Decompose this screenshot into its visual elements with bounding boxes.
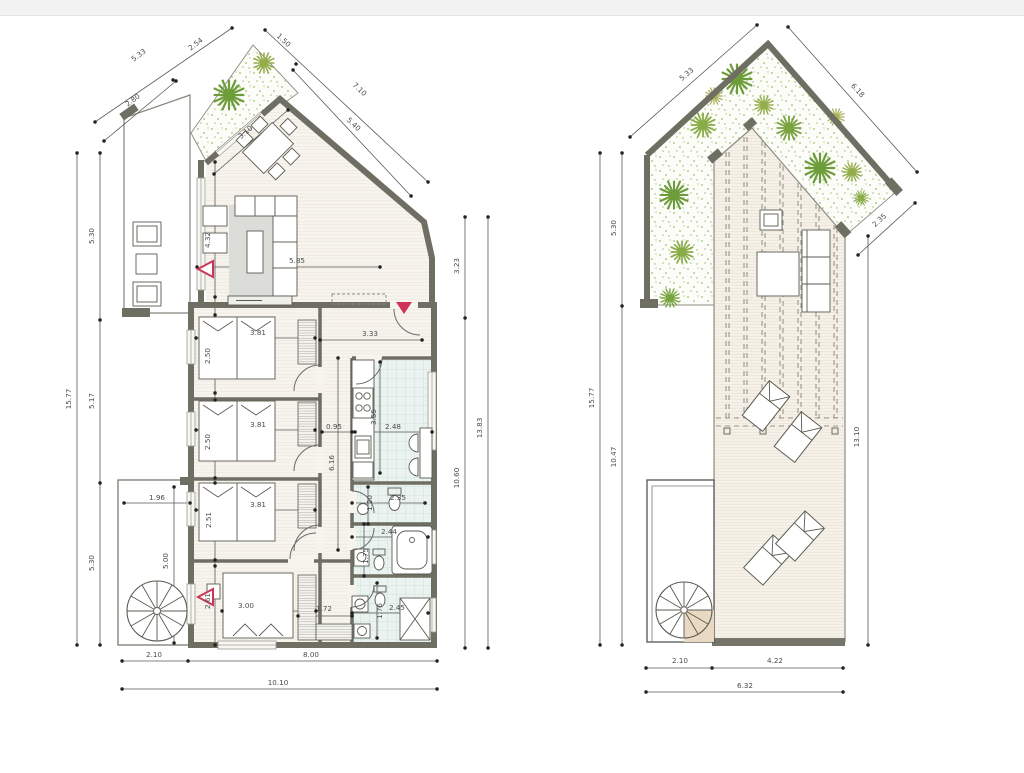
upper-terrace-floor xyxy=(124,95,190,313)
dimension-label: 2.61 xyxy=(203,593,212,609)
dimension-label: 3.33 xyxy=(362,329,378,338)
dimension-label: 6.16 xyxy=(327,455,336,471)
dimension-label: 2.45 xyxy=(389,603,405,612)
dimension-label: 10.10 xyxy=(268,678,289,687)
roof-access-terrace xyxy=(647,480,714,642)
toilet xyxy=(374,556,384,570)
dimension-label: 13.83 xyxy=(475,418,484,439)
dimension-label: 2.10 xyxy=(672,656,688,665)
page-top-strip xyxy=(0,0,1024,15)
wall-cap xyxy=(640,299,658,308)
dimension-label: 15.77 xyxy=(64,389,73,410)
ground-floor-plan: 5.332.542.801.507.105.4015.775.305.175.3… xyxy=(64,28,488,689)
wardrobe xyxy=(298,320,316,364)
dimension-label: 2.35 xyxy=(870,211,888,228)
dimension-label: 2.35 xyxy=(390,493,406,502)
dimension-label: 1.50 xyxy=(275,31,293,49)
wardrobe xyxy=(298,575,316,640)
dimension-label: 5.30 xyxy=(87,228,96,244)
dimension-label: 10.60 xyxy=(452,467,461,488)
dimension-label: 4.22 xyxy=(767,656,783,665)
terrace-wall-cap xyxy=(180,477,191,485)
spiral-staircase xyxy=(127,581,187,641)
floor-plan-page: 5.332.542.801.507.105.4015.775.305.175.3… xyxy=(0,0,1024,773)
floor-plan-drawing: 5.332.542.801.507.105.4015.775.305.175.3… xyxy=(0,0,1024,773)
terrace-wall-cap xyxy=(122,308,150,317)
dimension-label: 2.51 xyxy=(204,512,213,528)
dimension-label: 5.30 xyxy=(87,555,96,571)
dimension-label: 3.55 xyxy=(369,409,378,425)
bed xyxy=(223,573,293,638)
dimension-label: 8.00 xyxy=(303,650,319,659)
deck-edge-wall xyxy=(712,638,845,646)
dimension-label: 1.75 xyxy=(361,548,370,564)
dimension-label: 1.20 xyxy=(365,495,374,511)
dimension-label: 0.95 xyxy=(326,422,342,431)
dimension-label: 5.00 xyxy=(161,553,170,569)
dimension-label: 3.00 xyxy=(238,601,254,610)
coffee-table xyxy=(247,231,263,273)
bathtub xyxy=(392,526,432,574)
dimension-label: 2.10 xyxy=(146,650,162,659)
dimension-label: 15.77 xyxy=(587,388,596,409)
armchair xyxy=(203,206,227,226)
wardrobe xyxy=(298,402,316,446)
dimension-label: 1.72 xyxy=(316,604,332,613)
dimension-label: 2.54 xyxy=(186,35,205,52)
dimension-label: 5.33 xyxy=(129,47,147,64)
dimension-label: 3.81 xyxy=(250,328,266,337)
dimension-label: 10.47 xyxy=(609,447,618,468)
wardrobe xyxy=(298,484,316,528)
dimension-label: 7.10 xyxy=(351,80,369,98)
dimension-label: 2.44 xyxy=(381,527,397,536)
kitchen-bench xyxy=(420,428,432,478)
washing-machine xyxy=(352,596,368,612)
table xyxy=(757,252,799,296)
terrace-furniture xyxy=(133,222,161,306)
spiral-staircase xyxy=(656,582,712,638)
dimension-label: 2.50 xyxy=(203,434,212,450)
dimension-label: 1.96 xyxy=(149,493,165,502)
dimension-label: 3.23 xyxy=(452,258,461,274)
dimension-label: 2.50 xyxy=(203,348,212,364)
dimension-label: 5.40 xyxy=(345,115,363,133)
dimension-label: 1.76 xyxy=(375,603,384,619)
wardrobe xyxy=(316,624,352,640)
dimension-label: 5.85 xyxy=(289,256,305,265)
roof-terrace-plan: 5.336.182.3515.775.3010.4713.102.104.226… xyxy=(587,25,917,692)
dimension-label: 4.32 xyxy=(203,232,212,248)
dimension-label: 6.18 xyxy=(849,81,867,99)
dimension-label: 2.48 xyxy=(385,422,401,431)
dimension-label: 13.10 xyxy=(852,426,861,447)
dimension-label: 5.17 xyxy=(87,393,96,409)
dimension-label: 5.30 xyxy=(609,220,618,236)
dimension-label: 5.33 xyxy=(677,65,695,82)
dimension-label: 3.81 xyxy=(250,420,266,429)
dimension-label: 6.32 xyxy=(737,681,753,690)
sofa xyxy=(802,230,830,312)
dimension-label: 3.81 xyxy=(250,500,266,509)
